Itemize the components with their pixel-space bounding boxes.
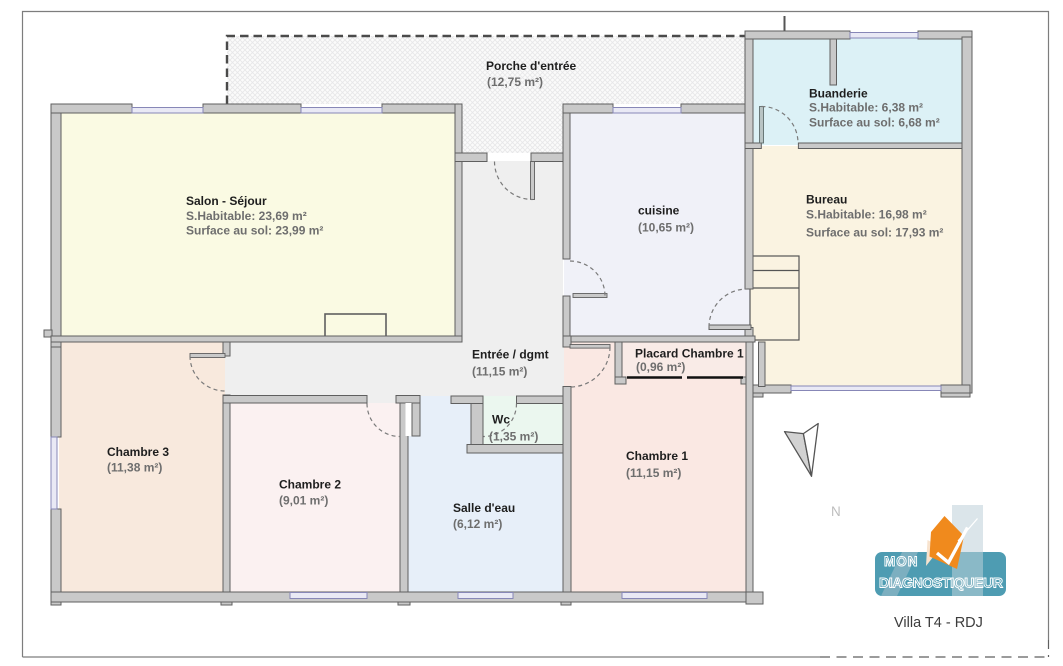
svg-text:S.Habitable: 23,69 m²: S.Habitable: 23,69 m² <box>186 209 307 223</box>
svg-text:Villa T4 - RDJ: Villa T4 - RDJ <box>894 615 983 631</box>
svg-text:(9,01 m²): (9,01 m²) <box>279 494 328 508</box>
svg-text:Salon - Séjour: Salon - Séjour <box>186 194 267 208</box>
svg-text:(10,65 m²): (10,65 m²) <box>638 221 694 235</box>
svg-text:Surface au sol: 17,93 m²: Surface au sol: 17,93 m² <box>806 226 943 240</box>
svg-text:(6,12 m²): (6,12 m²) <box>453 517 502 531</box>
svg-text:Chambre 3: Chambre 3 <box>107 445 169 459</box>
svg-text:(12,75 m²): (12,75 m²) <box>487 75 543 89</box>
svg-text:cuisine: cuisine <box>638 204 680 218</box>
svg-text:(11,15 m²): (11,15 m²) <box>472 365 527 379</box>
svg-text:Chambre 2: Chambre 2 <box>279 478 341 492</box>
svg-text:(1,35 m²): (1,35 m²) <box>489 430 538 444</box>
svg-text:MON: MON <box>884 554 919 569</box>
svg-text:S.Habitable: 16,98 m²: S.Habitable: 16,98 m² <box>806 208 927 222</box>
svg-text:Salle d'eau: Salle d'eau <box>453 501 515 515</box>
svg-text:Bureau: Bureau <box>806 193 847 207</box>
svg-text:Porche d'entrée: Porche d'entrée <box>486 59 577 73</box>
svg-text:N: N <box>831 504 841 519</box>
svg-text:Chambre 1: Chambre 1 <box>626 449 688 463</box>
svg-text:(11,15 m²): (11,15 m²) <box>626 466 681 480</box>
svg-text:Placard Chambre 1: Placard Chambre 1 <box>635 347 744 361</box>
svg-text:Surface au sol: 6,68 m²: Surface au sol: 6,68 m² <box>809 116 940 130</box>
svg-text:(0,96 m²): (0,96 m²) <box>636 360 685 374</box>
svg-text:Wc: Wc <box>492 413 510 427</box>
svg-text:Buanderie: Buanderie <box>809 87 868 101</box>
svg-text:Surface au sol: 23,99 m²: Surface au sol: 23,99 m² <box>186 224 323 238</box>
svg-text:(11,38 m²): (11,38 m²) <box>107 461 162 475</box>
svg-text:DIAGNOSTIQUEUR: DIAGNOSTIQUEUR <box>879 575 1003 591</box>
svg-text:S.Habitable: 6,38 m²: S.Habitable: 6,38 m² <box>809 101 923 115</box>
svg-text:Entrée / dgmt: Entrée / dgmt <box>472 348 549 362</box>
